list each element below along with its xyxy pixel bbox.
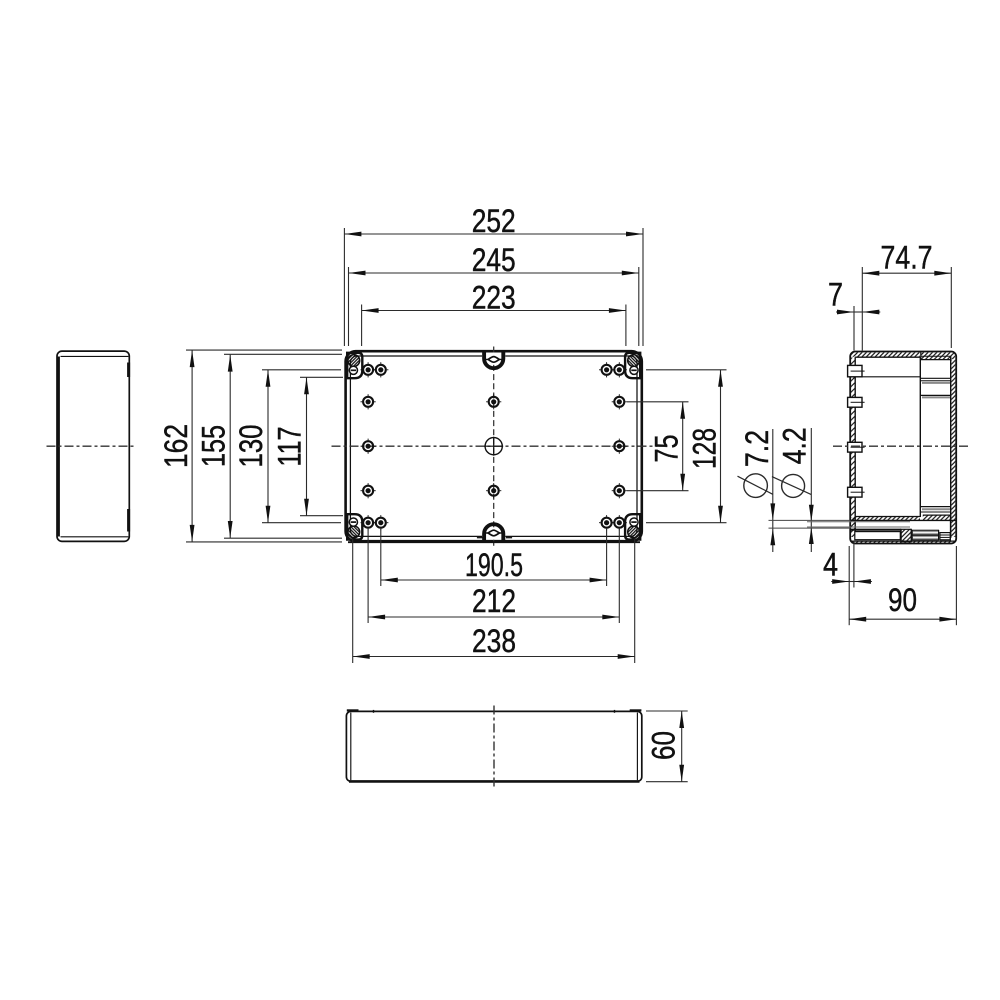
- svg-text:74.7: 74.7: [881, 239, 933, 275]
- svg-text:162: 162: [158, 424, 194, 468]
- svg-text:223: 223: [472, 279, 516, 315]
- svg-text:190.5: 190.5: [465, 547, 523, 583]
- svg-text:75: 75: [648, 435, 684, 463]
- svg-text:90: 90: [888, 582, 917, 618]
- svg-text:155: 155: [195, 425, 231, 467]
- svg-text:4: 4: [823, 546, 838, 582]
- svg-text:245: 245: [472, 242, 516, 278]
- svg-text:117: 117: [271, 427, 307, 467]
- svg-text:7: 7: [828, 276, 843, 312]
- svg-text:128: 128: [686, 428, 722, 469]
- svg-text:212: 212: [472, 583, 516, 619]
- svg-text:252: 252: [472, 203, 516, 239]
- svg-text:238: 238: [472, 623, 516, 659]
- svg-text:4.2: 4.2: [777, 427, 813, 464]
- svg-text:60: 60: [645, 731, 681, 760]
- svg-text:7.2: 7.2: [739, 430, 775, 467]
- svg-text:130: 130: [233, 425, 269, 468]
